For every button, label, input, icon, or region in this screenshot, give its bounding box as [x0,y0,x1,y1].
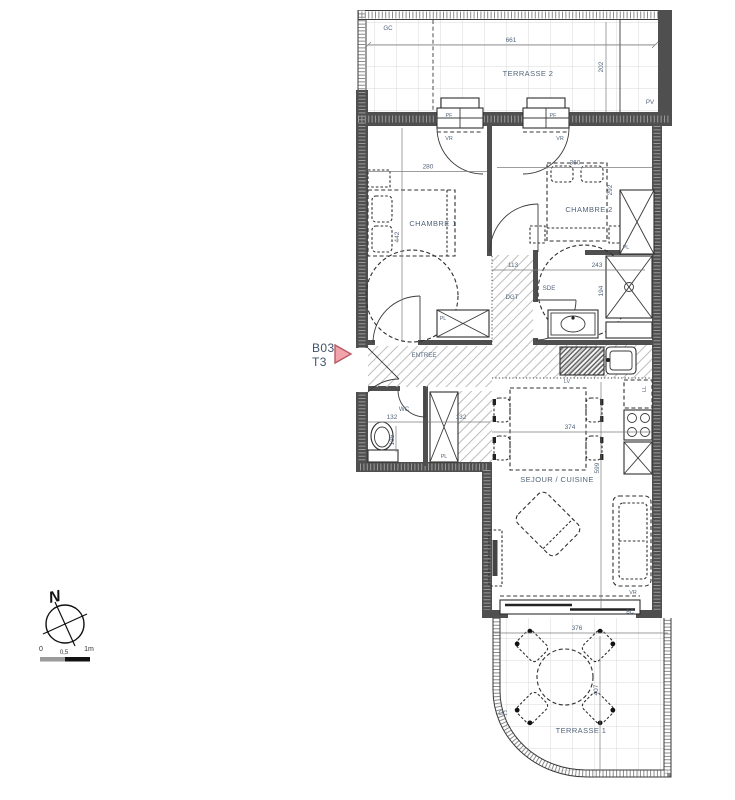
washing-machine-icon: LL [624,380,652,408]
unit-arrow-icon [335,345,351,363]
unit-code: B03 [312,341,335,355]
terrasse2-label: TERRASSE 2 [503,69,554,78]
pf-right-label: PF [550,113,558,119]
gc-bottom-label: GC [498,710,508,717]
chambre2-closet: PL [620,190,654,254]
gc-top-label: GC [383,25,393,32]
pf-left-label: PF [446,113,454,119]
kitchen-sink-icon [606,347,636,374]
window-pf-left: PF VR [437,98,483,174]
room-chambre1: PL 280 442 CHAMBRE 1 [366,128,489,342]
north-exterior-wall [356,112,672,126]
terrasse2-right-wall [658,10,672,126]
pl-chambre1-label: PL [440,316,447,322]
sde-label: SDE [543,285,556,292]
chambre1-width-dim: 280 [423,164,434,171]
pl-chambre2-label: PL [623,245,630,251]
dgt-width-dim: 113 [508,262,519,269]
chambre2-depth-dim: 292 [607,184,614,195]
washbasin-icon [548,310,598,338]
terrasse2-depth-dim: 202 [598,61,605,72]
chambre1-depth-dim: 442 [394,231,401,242]
terrasse2-tile-floor [366,20,660,114]
ll-label: LL [642,386,648,392]
chambre1-label: CHAMBRE 1 [409,219,456,228]
lv-label: LV [564,379,571,385]
sde-width-dim: 243 [592,262,603,269]
wc-label: WC [399,406,410,413]
wc-depth-dim: 136 [389,434,396,445]
shower-icon [606,256,652,318]
chambre2-width-dim: 360 [570,160,581,167]
chambre2-bed [547,163,607,241]
wc-east-wall [423,386,428,466]
scale-one: 1m [84,646,94,653]
room-terrasse1: 376 407 GC TERRASSE 1 [493,618,671,777]
cooktop-icon [624,410,652,440]
scale-segment-dark [65,657,90,662]
chambre-divider-wall [487,126,492,256]
pl-wc-label: PL [441,454,448,460]
scale-segment-light [40,657,65,662]
pv-label: PV [646,99,655,106]
wc-closet-dim: 132 [456,414,467,421]
vr-left-label: VR [445,136,453,142]
terrasse1-depth-dim: 407 [593,684,600,695]
sejour-west-wall [482,462,492,618]
chambre2-label: CHAMBRE 2 [565,205,612,214]
unit-tag: B03 T3 [312,341,351,369]
room-entree: ENTREE [411,352,436,359]
room-terrasse2: 661 202 GC TERRASSE 2 PV [358,10,672,126]
unit-type: T3 [312,355,327,369]
chambre2-door [490,204,538,252]
scale-half: 0,5 [60,650,69,656]
bay-window: VR BC [500,590,640,616]
sejour-label: SEJOUR / CUISINE [520,475,594,484]
scale-bar: 0 0,5 1m [39,646,94,662]
chambre2-nightstand-left [530,226,545,243]
vr-right-label: VR [556,136,564,142]
dgt-label: DGT [505,294,518,301]
terrasse1-tile-floor [493,618,671,777]
fridge-icon [624,442,652,474]
sde-south-wall [533,340,652,345]
floorplan-drawing: 661 202 GC TERRASSE 2 PV [0,0,735,800]
room-sde: 243 194 SDE [533,245,652,338]
sde-west-wall-upper [533,250,538,302]
vr-bay-label: VR [629,590,637,596]
dining-table-icon [493,388,604,470]
compass-icon: N [43,588,87,646]
chambre1-south-wall-a [366,340,375,345]
north-label: N [47,588,62,607]
dining-chairs [493,398,604,460]
terrasse1-width-dim: 376 [572,625,583,632]
bc-label: BC [626,610,634,616]
chambre1-closet: PL [437,310,489,337]
sejour-depth-dim: 599 [594,462,601,473]
terrasse1-label: TERRASSE 1 [556,726,607,735]
dishwasher-icon [560,347,604,375]
entree-label: ENTREE [411,352,436,359]
armchair-icon [513,489,582,558]
sejour-width-dim: 374 [565,424,576,431]
floorplan-page: 661 202 GC TERRASSE 2 PV [0,0,735,800]
chambre1-door [373,296,420,343]
wc-width-dim: 132 [387,414,398,421]
couch-icon [613,496,651,586]
terrasse2-width-dim: 661 [506,37,517,44]
sde-shelf [606,322,652,338]
chambre1-nightstand [368,170,390,187]
sde-depth-dim: 194 [598,285,605,296]
chambre1-south-wall-b [418,340,492,345]
hall-floor [458,391,492,462]
scale-zero: 0 [39,646,43,653]
wc-closet: PL [430,392,458,462]
